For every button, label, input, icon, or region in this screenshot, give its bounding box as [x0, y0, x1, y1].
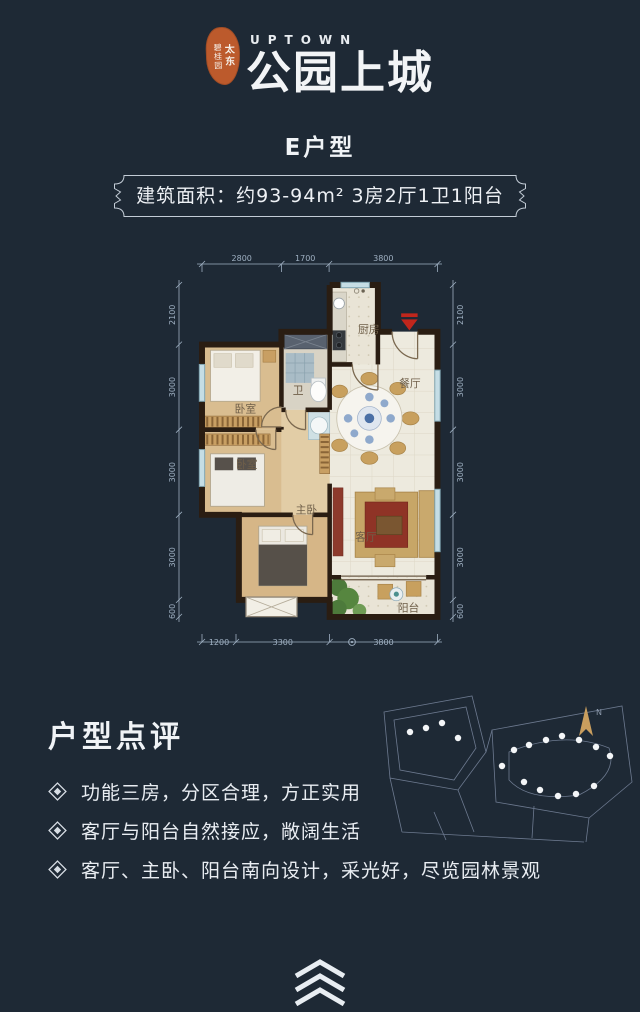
unit-type-title: E户型 [0, 128, 640, 162]
dim-label: 3000 [456, 462, 465, 482]
dim-label: 1200 [209, 638, 229, 647]
review-point: 客厅、主卧、阳台南向设计，采光好，尽览园林景观 [48, 856, 608, 883]
area-spec-text: 建筑面积：约93-94m² 3房2厅1卫1阳台 [114, 175, 526, 217]
brand-text: UPTOWN 公园上城 [246, 27, 434, 96]
diamond-bullet-icon [48, 782, 67, 801]
room-label-living: 客厅 [355, 530, 377, 543]
dim-label: 2100 [456, 305, 465, 325]
scroll-up-chevrons-icon[interactable] [292, 958, 348, 1012]
promo-page: { "page": {"background": "#1e2935"}, "he… [0, 0, 640, 1008]
room-label-bedroom1: 卧室 [235, 403, 257, 416]
dim-label: 3000 [456, 547, 465, 567]
brand-name-en: UPTOWN [250, 33, 434, 47]
diamond-bullet-icon [48, 821, 67, 840]
review-title: 户型点评 [48, 712, 608, 756]
dim-label: 3800 [373, 254, 393, 263]
review-point-text: 客厅与阳台自然接应，敞阔生活 [81, 817, 361, 844]
seal-text-right: 太东 [222, 44, 233, 68]
brand-header: 碧桂园 太东 UPTOWN 公园上城 [0, 0, 640, 96]
review-point-text: 功能三房，分区合理，方正实用 [81, 778, 361, 805]
room-label-balcony: 阳台 [398, 601, 420, 614]
dim-label: 1700 [295, 254, 315, 263]
dim-label: 3000 [456, 377, 465, 397]
dim-label: 3000 [168, 377, 177, 397]
floor-plan-svg: 2800 1700 3800 2100 3000 3000 3000 600 2… [155, 250, 500, 675]
diamond-bullet-icon [48, 860, 67, 879]
room-label-dining: 餐厅 [399, 377, 421, 390]
plan-body: 厨房 餐厅 卫 卧室 卧室 主卧 客厅 阳台 [199, 282, 440, 617]
entrance-arrow-icon [401, 313, 417, 330]
floor-plan: 2800 1700 3800 2100 3000 3000 3000 600 2… [155, 250, 500, 675]
area-spec-plaque: 建筑面积：约93-94m² 3房2厅1卫1阳台 [114, 175, 526, 217]
dim-label: 3800 [373, 638, 393, 647]
dim-label: 2100 [168, 305, 177, 325]
dim-label: 3300 [273, 638, 293, 647]
seal-text-left: 碧桂园 [213, 43, 222, 70]
dim-label: 3000 [168, 462, 177, 482]
room-label-bedroom2: 卧室 [236, 458, 258, 471]
dim-label: 600 [168, 604, 177, 619]
room-label-master: 主卧 [296, 503, 318, 516]
room-label-bath: 卫 [293, 384, 304, 397]
room-label-kitchen: 厨房 [358, 323, 380, 336]
review-section: 户型点评 功能三房，分区合理，方正实用 客厅与阳台自然接应，敞阔生活 客厅、主卧… [48, 712, 608, 895]
developer-seal: 碧桂园 太东 [205, 26, 241, 85]
dim-label: 3000 [168, 547, 177, 567]
review-point: 功能三房，分区合理，方正实用 [48, 778, 608, 805]
review-point: 客厅与阳台自然接应，敞阔生活 [48, 817, 608, 844]
dim-label: 600 [456, 604, 465, 619]
review-points: 功能三房，分区合理，方正实用 客厅与阳台自然接应，敞阔生活 客厅、主卧、阳台南向… [48, 778, 608, 883]
review-point-text: 客厅、主卧、阳台南向设计，采光好，尽览园林景观 [81, 856, 541, 883]
dim-label: 2800 [232, 254, 252, 263]
brand-name-cn: 公园上城 [246, 49, 434, 96]
